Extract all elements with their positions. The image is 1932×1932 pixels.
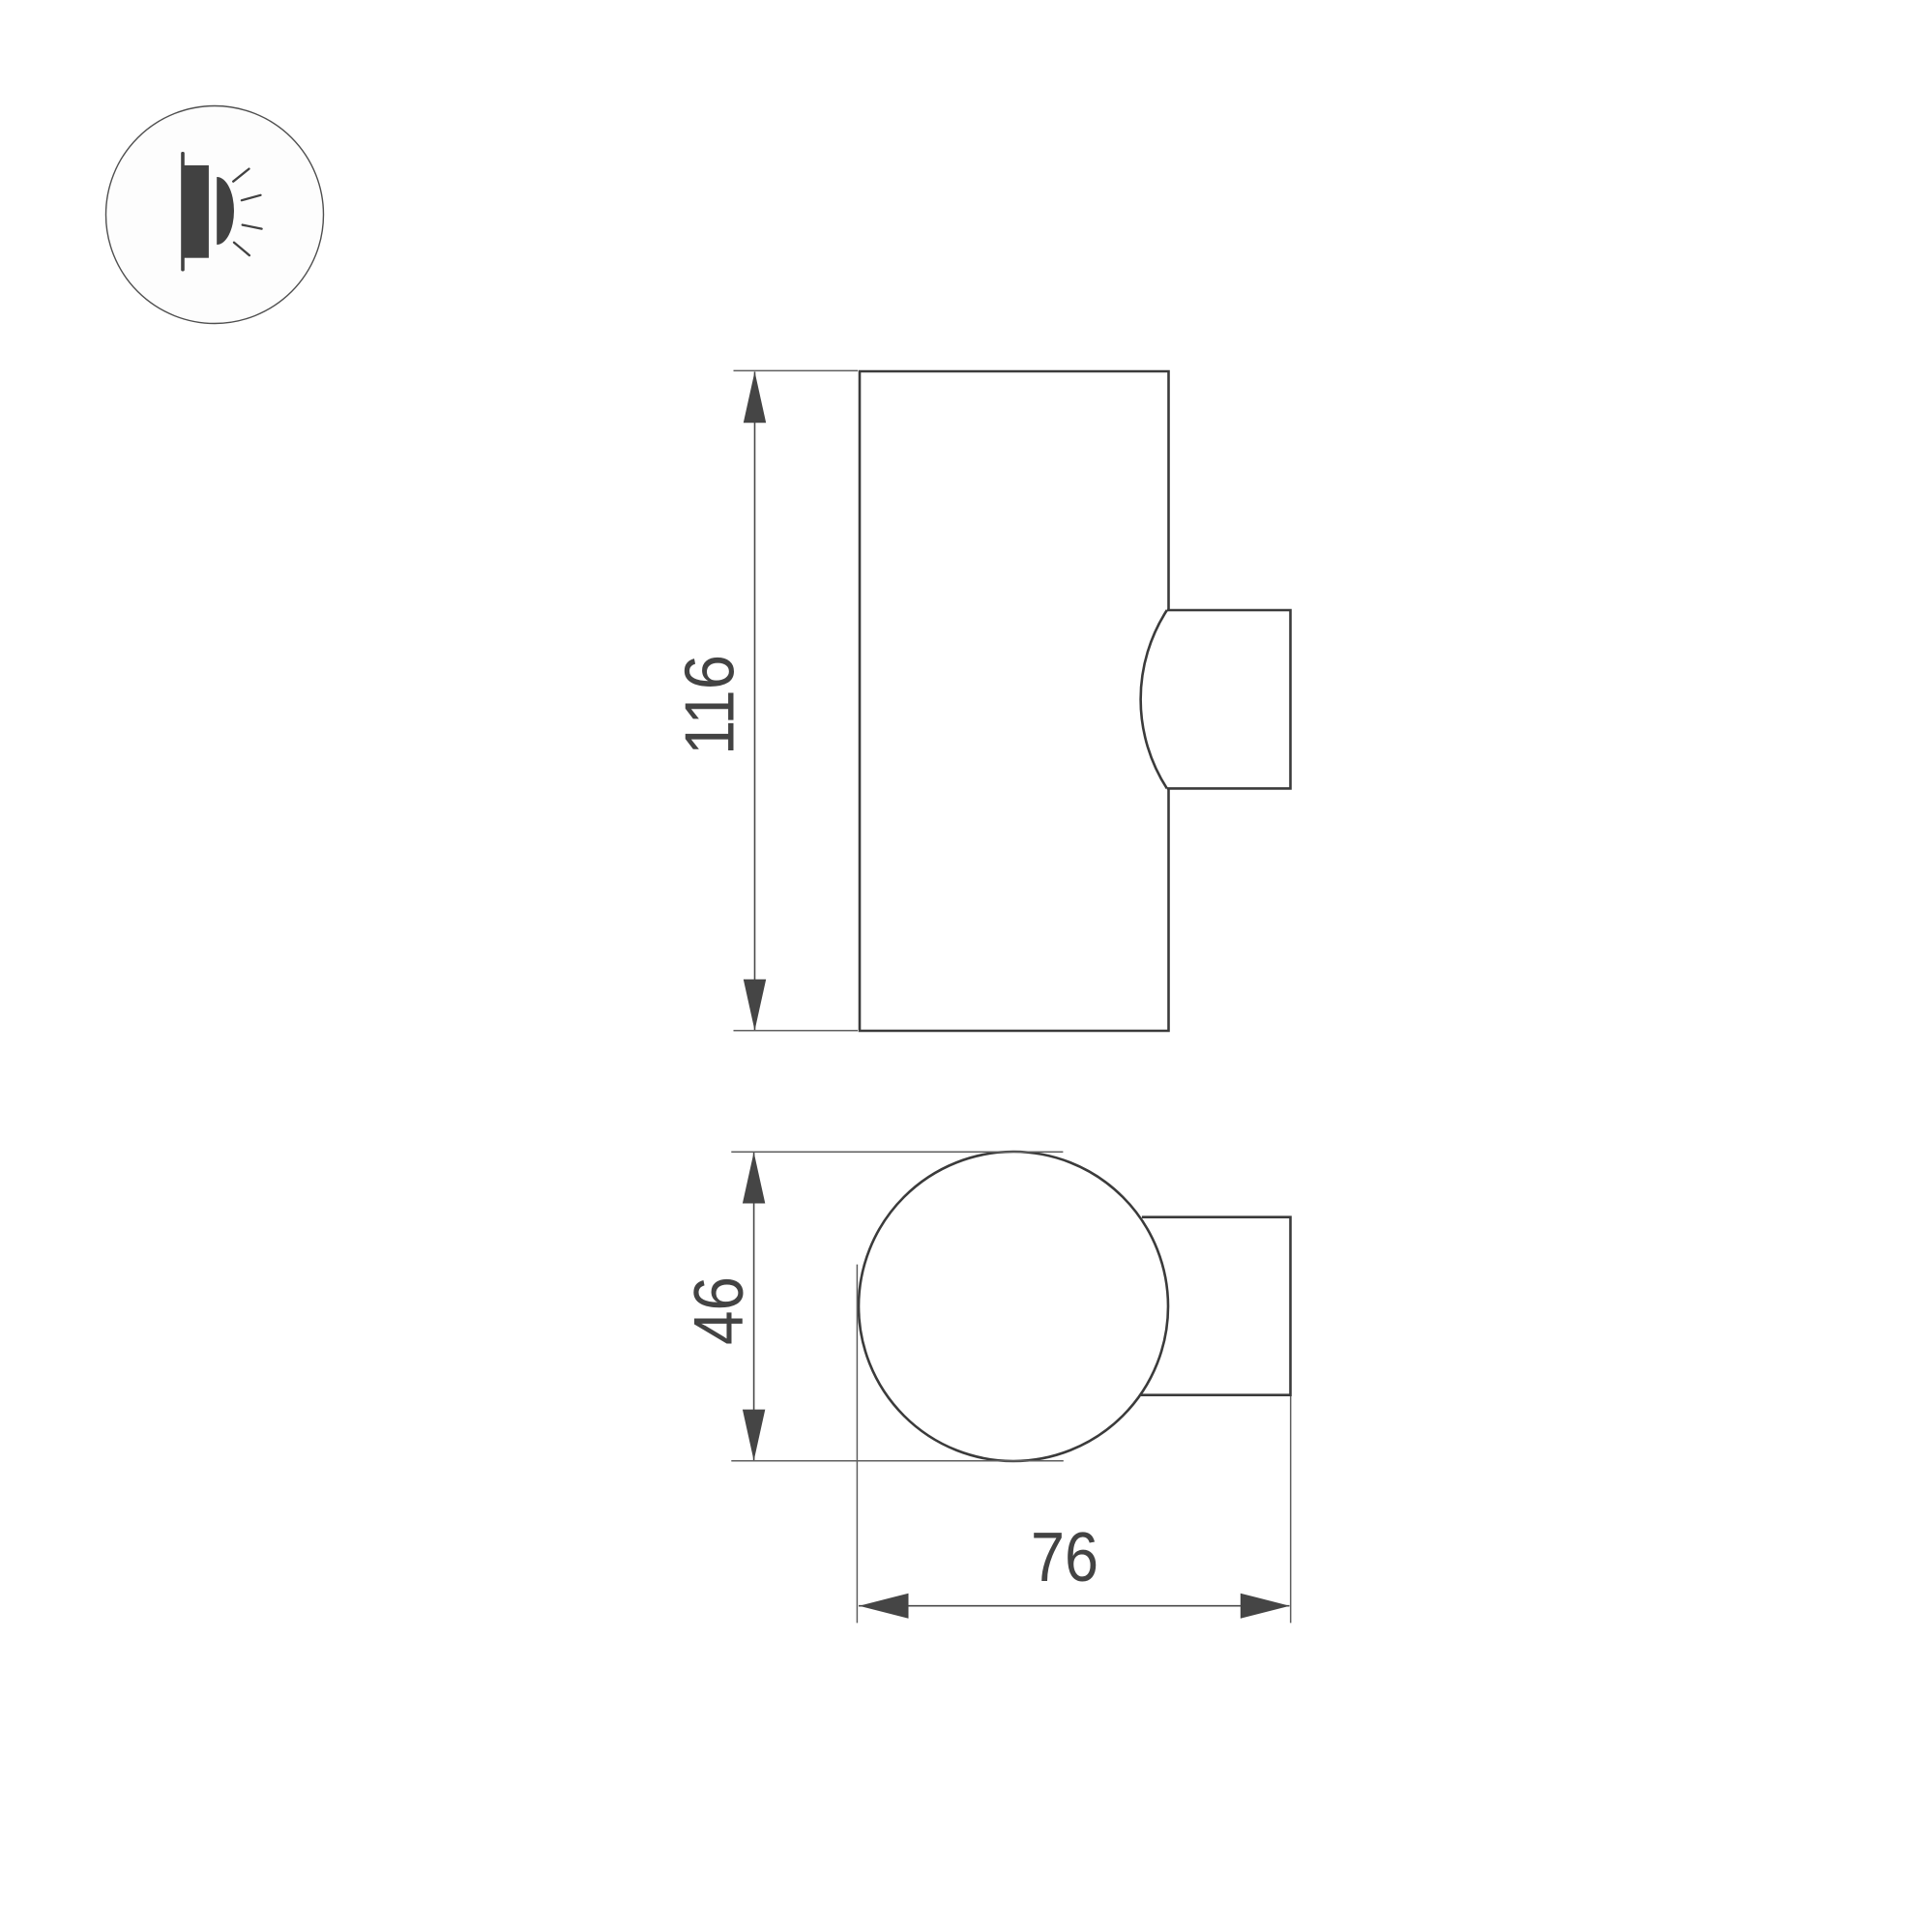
- svg-text:76: 76: [1031, 1519, 1098, 1596]
- svg-text:116: 116: [672, 655, 749, 755]
- svg-text:46: 46: [681, 1276, 758, 1345]
